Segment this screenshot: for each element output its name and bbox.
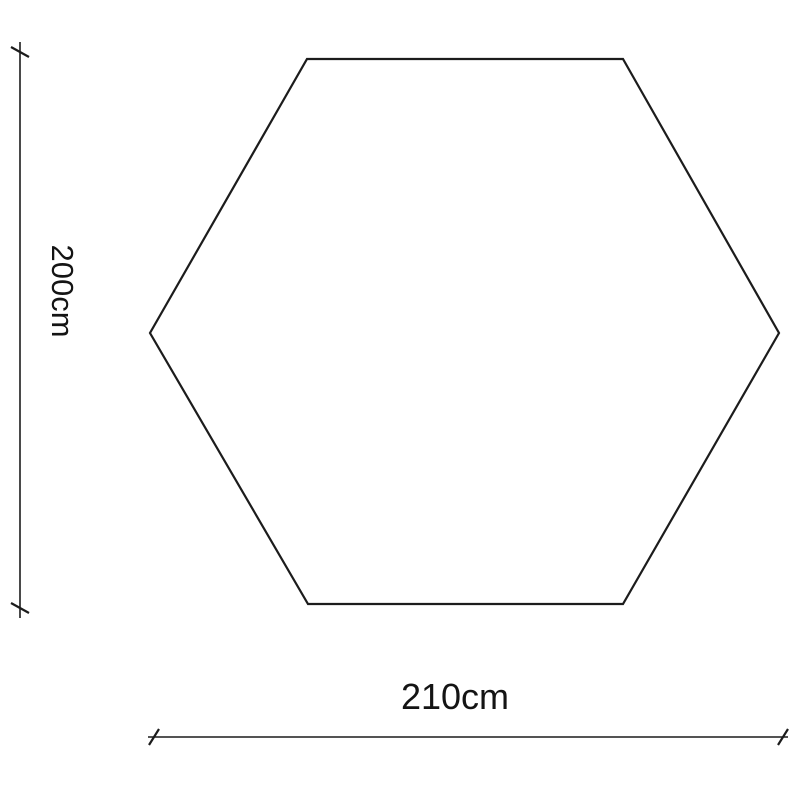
width-dimension-label: 210cm [401, 676, 509, 717]
height-dimension-label: 200cm [45, 244, 80, 337]
height-dimension: 200cm [11, 42, 80, 618]
hexagon-shape [150, 59, 779, 604]
hexagon-dimension-diagram: 200cm 210cm [0, 0, 793, 793]
width-dimension: 210cm [148, 676, 788, 745]
